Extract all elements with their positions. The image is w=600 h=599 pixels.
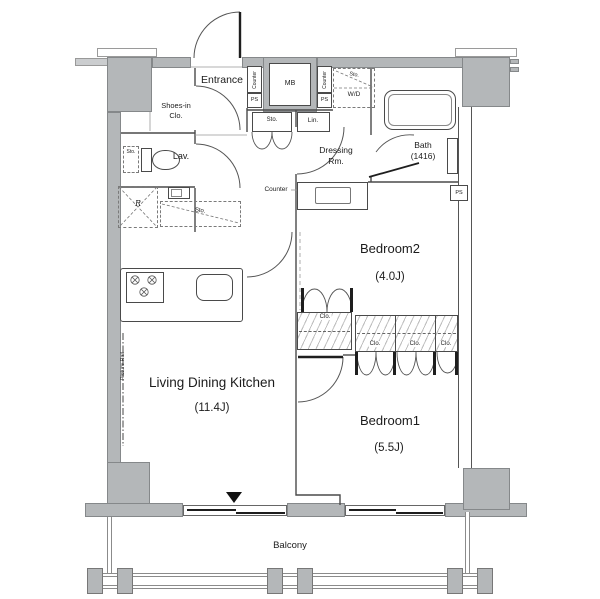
bedroom1-window-pane-1 [349,509,396,511]
stove [126,272,164,303]
entrance-label: Entrance [201,74,243,88]
vanity-basin [315,187,351,204]
bedroom1-door-arc [298,357,343,402]
counter-box-1-label: Counter [252,71,258,89]
railing-post-6 [477,568,493,594]
ldk-label: Living Dining Kitchen [149,374,275,392]
floor-plan: MB Counter PS Counter PS Sto. W/D Sto. L… [0,0,600,599]
meter-box: MB [269,63,311,106]
bathtub-inner [388,94,452,126]
pipe-space-3-label: PS [455,190,462,197]
bedroom1-closet-label-2: Clo. [409,341,422,347]
entrance-door-arc [194,12,240,58]
bedroom1-closet-label-1: Clo. [369,341,382,347]
pipe-space-1-label: PS [251,97,258,104]
bathroom-label: Bath (1416) [411,140,436,162]
pipe-space-2: PS [317,93,332,108]
ldk-window-pane-2 [236,512,285,514]
linen-closet-label: Lin. [308,117,318,125]
counter-box-2-label: Counter [322,71,328,89]
vanity-counter-label: Counter [264,186,287,194]
bedroom1-closet-doors-3 [437,352,458,373]
bedroom1-closet-rod [357,333,456,334]
railing-post-3 [267,568,283,594]
corridor-storage-label: Sto. [267,117,278,125]
bedroom1-closet-doors-1 [357,352,395,375]
railing-post-2 [117,568,133,594]
lavatory-storage-label: Sto. [127,149,136,156]
balcony-partition-left [107,517,112,573]
bedroom2-closet-label: Clo. [319,314,332,320]
dressing-room-label: Dressing Rm. [319,145,353,167]
counter-box-2: Counter [317,66,332,93]
ldk-door-arc [247,232,292,277]
bath-door-arc [376,135,414,152]
bedroom1-label: Bedroom1 [360,413,420,430]
railing-post-4 [297,568,313,594]
pipe-space-1: PS [247,93,262,108]
pipe-space-3: PS [450,185,468,201]
ldk-window-pane-1 [187,509,236,511]
shoes-closet-door-arc [196,86,240,130]
bedroom2-closet-rod [299,331,350,332]
bath-counter [447,138,458,174]
toilet-tank [141,148,152,172]
lavatory-door-arc [196,144,240,188]
bedroom1-size: (5.5J) [374,441,403,456]
lavatory-label: Lav. [173,151,189,163]
meter-box-label: MB [285,79,296,88]
refrigerator-label: R [135,199,141,209]
ldk-balcony-window [183,505,287,516]
balcony-label: Balcony [273,540,307,552]
balcony-railing-bottom [87,585,493,589]
bedroom1-balcony-window [345,505,445,516]
washer-storage-label: Sto. [349,71,360,80]
railing-post-1 [87,568,103,594]
hand-basin-inner [171,189,182,197]
bedroom2-size: (4.0J) [375,270,404,285]
shoes-in-closet-label: Shoes-in Clo. [161,101,191,121]
pipe-space-2-label: PS [321,97,328,104]
bedroom1-window-pane-2 [396,512,443,514]
railing-post-5 [447,568,463,594]
bath-door-leaf [369,163,419,177]
balcony-railing-top [87,573,493,577]
kitchen-storage-label: Sto. [194,207,206,216]
bedroom2-label: Bedroom2 [360,241,420,258]
washer-dryer-label: W/D [348,91,361,99]
kitchen-sink [196,274,233,301]
counter-box-1: Counter [247,66,262,93]
bedroom2-closet-bifold [302,289,352,312]
ldk-size: (11.4J) [195,401,230,416]
corridor-storage-bifold [252,132,292,149]
picture-rail-label: Picture Rail [120,352,126,380]
direction-marker-triangle [226,492,242,503]
balcony-partition-right [465,512,470,573]
bedroom1-closet-label-3: Clo. [440,341,453,347]
bedroom1-closet-doors-2 [397,352,435,375]
